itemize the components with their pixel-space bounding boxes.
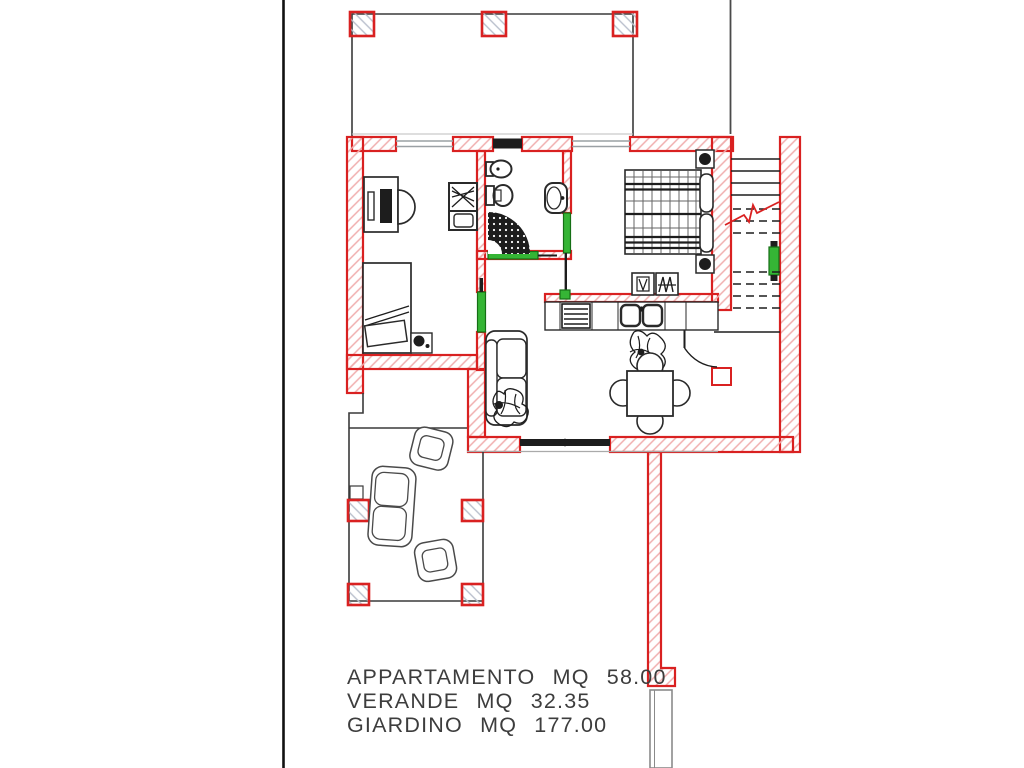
- garden: [348, 393, 483, 605]
- garden-pillar: [348, 500, 369, 521]
- window: [572, 141, 630, 147]
- garden-pillar: [348, 584, 369, 605]
- terrace-pillar: [613, 12, 637, 36]
- area-summary: APPARTAMENTO MQ 58.00 VERANDE MQ 32.35 G…: [347, 665, 667, 737]
- bedroom-dresser: [656, 273, 678, 295]
- gate: [650, 690, 672, 768]
- garden-area-label: GIARDINO MQ 177.00: [347, 713, 607, 737]
- main-bedroom: [625, 150, 714, 295]
- veranda-area-label: VERANDE MQ 32.35: [347, 689, 591, 713]
- window: [396, 141, 453, 147]
- dining-set: [610, 353, 690, 434]
- nightstand: [696, 255, 714, 273]
- outdoor-armchair: [413, 538, 458, 583]
- bathroom: [486, 161, 567, 255]
- bidet: [486, 161, 512, 178]
- garden-wall: [648, 452, 675, 686]
- desk-chair: [398, 190, 415, 224]
- desk: [364, 177, 415, 232]
- wardrobe: [449, 183, 477, 211]
- floor-plan-page: APPARTAMENTO MQ 58.00 VERANDE MQ 32.35 G…: [0, 0, 1024, 768]
- nightstand: [411, 333, 432, 353]
- sofa: [486, 331, 527, 425]
- corner-shower: [488, 212, 530, 254]
- outdoor-armchair: [408, 425, 455, 472]
- terrace-pillar: [482, 12, 506, 36]
- bathroom-window: [493, 139, 522, 149]
- apartment-area-label: APPARTAMENTO MQ 58.00: [347, 665, 667, 689]
- upper-terrace: [350, 12, 637, 137]
- outdoor-sofa: [367, 466, 416, 548]
- living-room: [486, 331, 528, 427]
- single-bed: [363, 263, 411, 353]
- toilet: [486, 185, 513, 206]
- washbasin: [545, 183, 567, 213]
- garden-pillar: [462, 584, 483, 605]
- kitchen: [545, 302, 718, 373]
- floor-plan-drawing: APPARTAMENTO MQ 58.00 VERANDE MQ 32.35 G…: [0, 0, 1024, 768]
- washing-machine: [449, 211, 477, 230]
- left-room: [363, 177, 477, 353]
- walls: [347, 137, 800, 686]
- double-bed: [625, 170, 713, 254]
- terrace-pillar: [350, 12, 374, 36]
- dining-table: [627, 371, 673, 416]
- garden-pillar: [462, 500, 483, 521]
- bedroom-cabinet: [632, 273, 654, 295]
- nightstand: [696, 150, 714, 168]
- stairwell-entrance-door: [769, 241, 779, 281]
